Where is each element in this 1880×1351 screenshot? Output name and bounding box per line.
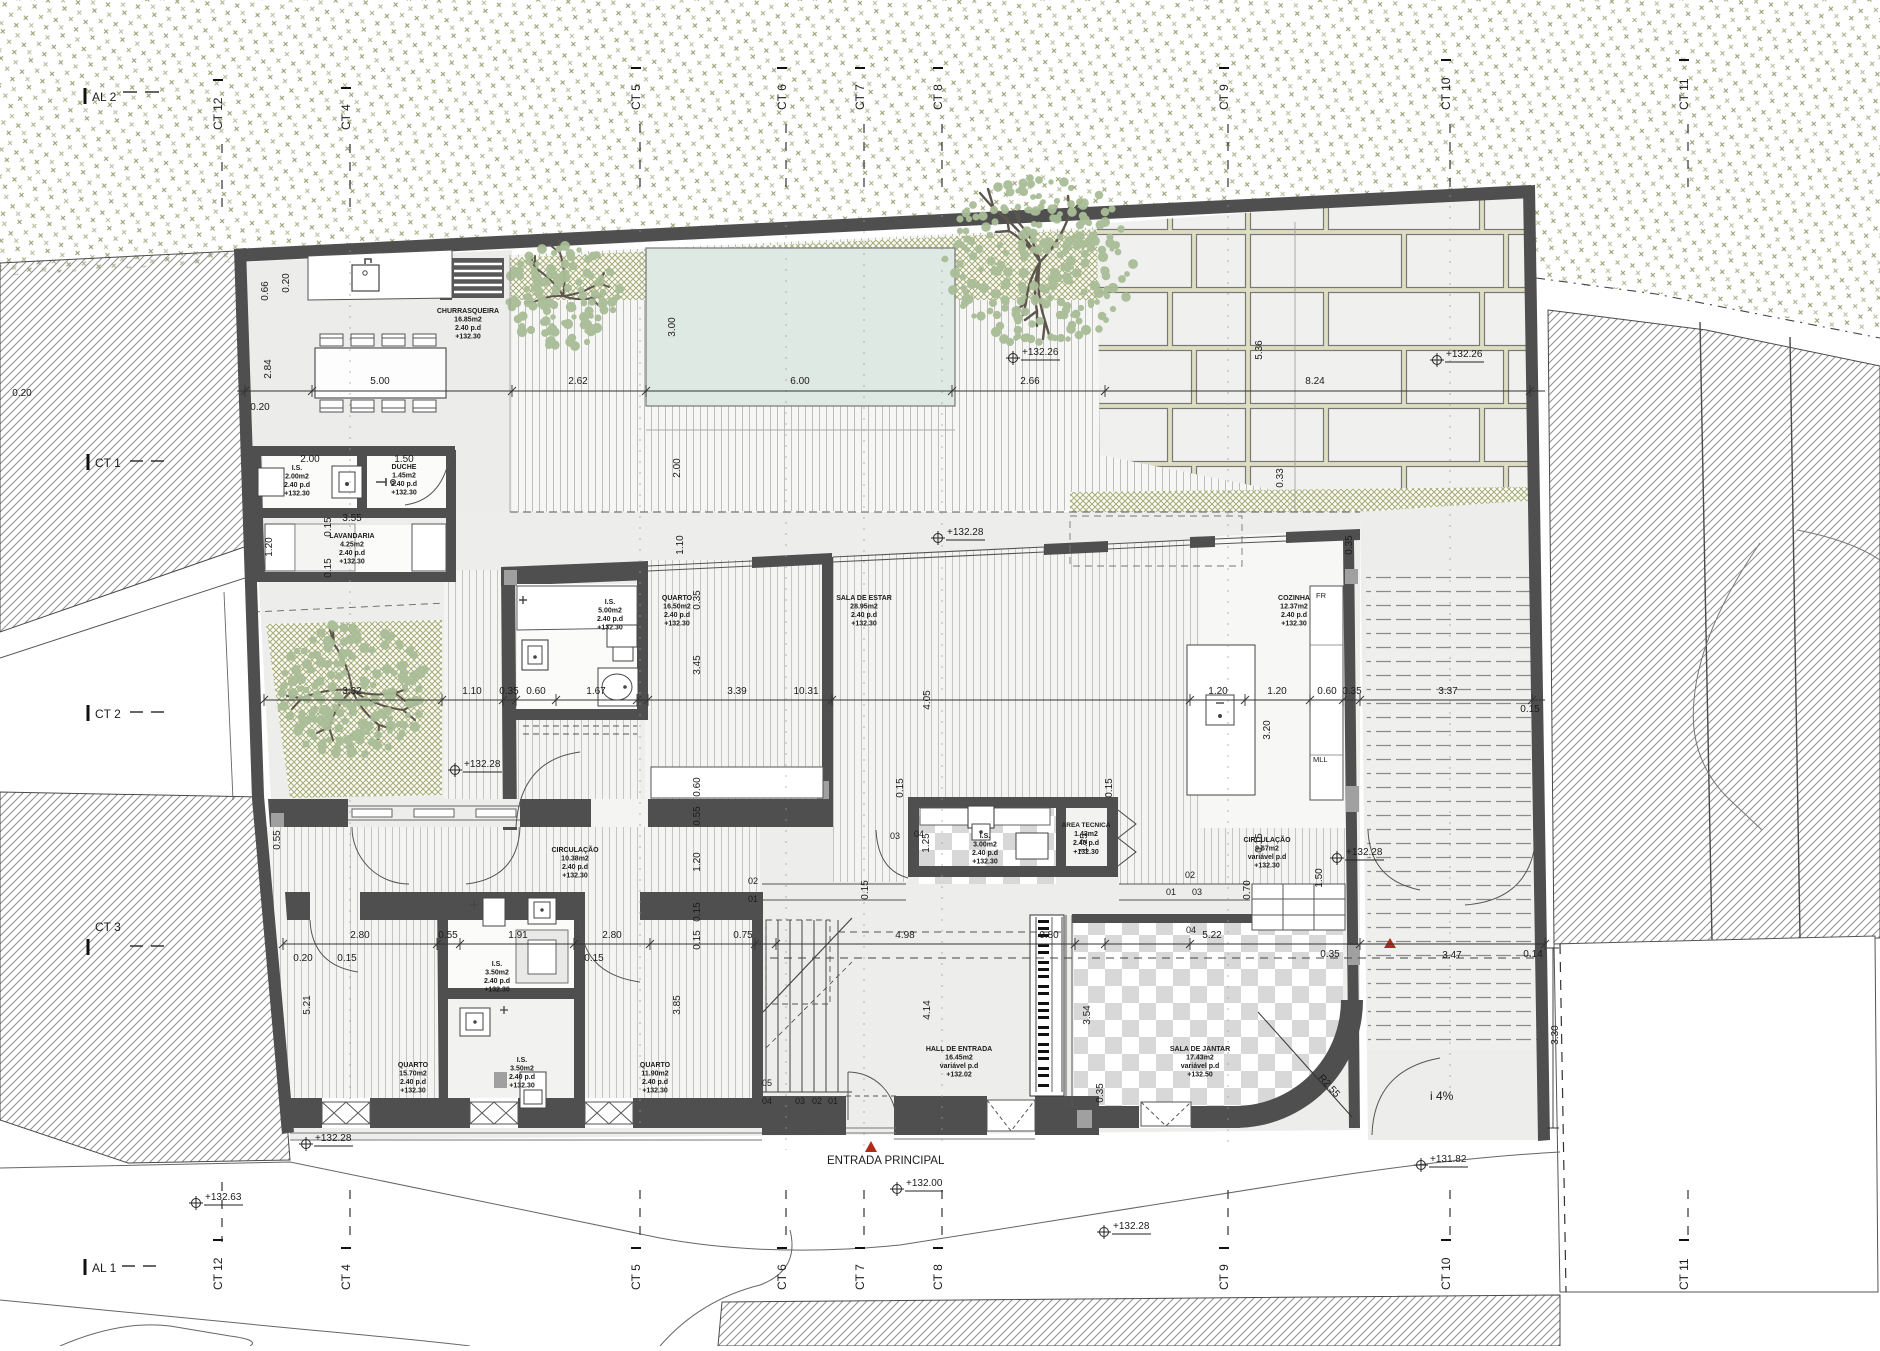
- svg-text:+132.30: +132.30: [400, 1088, 426, 1095]
- svg-text:CHURRASQUEIRA: CHURRASQUEIRA: [437, 308, 499, 315]
- svg-text:0.15: 0.15: [1254, 833, 1265, 853]
- svg-text:CT 5: CT 5: [629, 1264, 643, 1290]
- svg-text:2.40 p.d: 2.40 p.d: [972, 850, 998, 857]
- svg-text:+132.30: +132.30: [284, 491, 310, 498]
- svg-text:0.35: 0.35: [1342, 686, 1362, 697]
- svg-text:17.43m2: 17.43m2: [1186, 1055, 1214, 1062]
- svg-text:3.32: 3.32: [342, 686, 362, 697]
- svg-text:12.37m2: 12.37m2: [1280, 604, 1308, 611]
- svg-text:16.45m2: 16.45m2: [945, 1055, 973, 1062]
- svg-text:I.S.: I.S.: [517, 1057, 528, 1064]
- svg-text:1.91: 1.91: [508, 930, 528, 941]
- svg-text:2.40 p.d: 2.40 p.d: [391, 481, 417, 488]
- svg-text:+132.30: +132.30: [1281, 621, 1307, 628]
- svg-text:+132.30: +132.30: [642, 1088, 668, 1095]
- svg-text:CT 11: CT 11: [1677, 1258, 1691, 1290]
- svg-text:02: 02: [748, 876, 758, 886]
- svg-text:QUARTO: QUARTO: [662, 595, 693, 602]
- svg-text:0.60: 0.60: [1317, 686, 1337, 697]
- svg-text:2.40 p.d: 2.40 p.d: [851, 612, 877, 619]
- svg-text:3.37: 3.37: [1438, 686, 1458, 697]
- svg-text:DUCHE: DUCHE: [392, 464, 417, 471]
- svg-text:+132.50: +132.50: [1187, 1072, 1213, 1079]
- svg-text:+132.30: +132.30: [455, 334, 481, 341]
- svg-text:I.S.: I.S.: [605, 599, 616, 606]
- svg-text:1.45m2: 1.45m2: [392, 473, 416, 480]
- svg-text:+132.30: +132.30: [339, 559, 365, 566]
- svg-text:28.95m2: 28.95m2: [850, 604, 878, 611]
- svg-text:3.55: 3.55: [342, 513, 362, 524]
- svg-text:3.20: 3.20: [1262, 720, 1273, 740]
- svg-text:+132.28: +132.28: [464, 759, 501, 770]
- svg-text:+132.30: +132.30: [597, 625, 623, 632]
- svg-text:1.20: 1.20: [692, 852, 703, 872]
- svg-text:0.55: 0.55: [692, 806, 703, 826]
- svg-text:5.00m2: 5.00m2: [598, 608, 622, 615]
- svg-text:0.60: 0.60: [526, 686, 546, 697]
- svg-text:0.15: 0.15: [1520, 704, 1540, 715]
- svg-text:MLL: MLL: [1313, 755, 1328, 764]
- svg-text:2.00: 2.00: [300, 454, 320, 465]
- svg-text:+132.28: +132.28: [1113, 1221, 1150, 1232]
- svg-text:10.38m2: 10.38m2: [561, 856, 589, 863]
- svg-text:6.00: 6.00: [790, 376, 810, 387]
- svg-text:16.85m2: 16.85m2: [454, 317, 482, 324]
- svg-text:+132.26: +132.26: [1446, 349, 1483, 360]
- svg-text:CT 6: CT 6: [775, 84, 789, 110]
- svg-text:0.15: 0.15: [692, 902, 703, 922]
- svg-text:4.98: 4.98: [895, 930, 915, 941]
- svg-text:CT 10: CT 10: [1439, 1257, 1453, 1290]
- svg-text:04: 04: [762, 1096, 772, 1106]
- svg-text:0.35: 0.35: [1095, 1083, 1106, 1103]
- svg-text:1.20: 1.20: [264, 537, 275, 557]
- svg-text:1.20: 1.20: [1267, 686, 1287, 697]
- svg-text:2.40 p.d: 2.40 p.d: [484, 978, 510, 985]
- svg-text:+132.30: +132.30: [664, 621, 690, 628]
- svg-text:0.60: 0.60: [692, 777, 703, 797]
- svg-text:CT 2: CT 2: [95, 707, 121, 721]
- svg-text:+132.26: +132.26: [1022, 347, 1059, 358]
- svg-text:CT 8: CT 8: [931, 84, 945, 110]
- svg-text:3.54: 3.54: [1082, 1005, 1093, 1025]
- svg-text:SALA DE ESTAR: SALA DE ESTAR: [836, 595, 892, 602]
- svg-text:+132.28: +132.28: [315, 1133, 352, 1144]
- svg-text:5.22: 5.22: [1202, 930, 1222, 941]
- svg-text:2.80: 2.80: [602, 930, 622, 941]
- svg-text:+132.30: +132.30: [562, 873, 588, 880]
- svg-text:5.36: 5.36: [1254, 340, 1265, 360]
- svg-text:0.15: 0.15: [584, 953, 604, 964]
- svg-text:04: 04: [914, 829, 924, 839]
- svg-text:CIRCULAÇÃO: CIRCULAÇÃO: [551, 845, 599, 854]
- svg-text:2.00m2: 2.00m2: [285, 474, 309, 481]
- svg-text:0.15: 0.15: [323, 517, 334, 537]
- svg-text:CT 3: CT 3: [95, 920, 121, 934]
- svg-text:+132.02: +132.02: [946, 1072, 972, 1079]
- svg-text:10.31: 10.31: [793, 686, 818, 697]
- svg-text:2.84: 2.84: [263, 359, 274, 379]
- svg-text:+131.82: +131.82: [1430, 1154, 1467, 1165]
- svg-text:1.10: 1.10: [462, 686, 482, 697]
- svg-text:2.40 p.d: 2.40 p.d: [642, 1079, 668, 1086]
- svg-text:0.14: 0.14: [1523, 949, 1543, 960]
- svg-text:2.40 p.d: 2.40 p.d: [509, 1074, 535, 1081]
- svg-text:11.90m2: 11.90m2: [641, 1071, 668, 1078]
- svg-text:15.70m2: 15.70m2: [399, 1071, 427, 1078]
- svg-text:16.50m2: 16.50m2: [663, 604, 691, 611]
- svg-text:4.05: 4.05: [922, 690, 933, 710]
- svg-text:01: 01: [828, 1096, 838, 1106]
- svg-text:4.14: 4.14: [922, 1000, 933, 1020]
- svg-text:CT 8: CT 8: [931, 1264, 945, 1290]
- svg-text:+132.30: +132.30: [484, 987, 510, 994]
- svg-text:1.20: 1.20: [1208, 686, 1228, 697]
- svg-text:0.75: 0.75: [733, 930, 753, 941]
- svg-text:0.35: 0.35: [1320, 949, 1340, 960]
- svg-text:CT 4: CT 4: [339, 1264, 353, 1290]
- svg-text:03: 03: [890, 831, 900, 841]
- svg-text:CT 10: CT 10: [1439, 77, 1453, 110]
- svg-text:0.33: 0.33: [1275, 468, 1286, 488]
- svg-text:5.21: 5.21: [302, 995, 313, 1015]
- svg-text:3.45: 3.45: [692, 655, 703, 675]
- svg-text:2.66: 2.66: [1020, 376, 1040, 387]
- svg-text:HALL DE ENTRADA: HALL DE ENTRADA: [926, 1046, 992, 1053]
- svg-text:variável p.d: variável p.d: [1248, 854, 1287, 861]
- svg-text:+132.30: +132.30: [509, 1083, 535, 1090]
- svg-text:2.40 p.d: 2.40 p.d: [1281, 612, 1307, 619]
- svg-text:CT 1: CT 1: [95, 456, 121, 470]
- svg-text:2.40 p.d: 2.40 p.d: [455, 325, 481, 332]
- svg-text:3.50m2: 3.50m2: [485, 970, 509, 977]
- svg-text:01: 01: [1166, 887, 1176, 897]
- svg-text:3.00m2: 3.00m2: [973, 842, 997, 849]
- svg-text:1.10: 1.10: [675, 535, 686, 555]
- svg-text:CT 11: CT 11: [1677, 78, 1691, 110]
- svg-text:4.25m2: 4.25m2: [340, 542, 364, 549]
- svg-text:2.40 p.d: 2.40 p.d: [339, 550, 365, 557]
- svg-text:I.S.: I.S.: [292, 465, 303, 472]
- svg-text:CT 5: CT 5: [629, 84, 643, 110]
- svg-text:0.35: 0.35: [692, 590, 703, 610]
- svg-text:3.00: 3.00: [667, 317, 678, 337]
- svg-text:02: 02: [1185, 870, 1195, 880]
- svg-text:SALA DE JANTAR: SALA DE JANTAR: [1170, 1046, 1230, 1053]
- svg-text:+132.30: +132.30: [1254, 863, 1280, 870]
- svg-text:CT 4: CT 4: [339, 104, 353, 130]
- svg-text:2.62: 2.62: [568, 376, 588, 387]
- svg-text:QUARTO: QUARTO: [398, 1062, 429, 1069]
- svg-text:variável p.d: variável p.d: [1181, 1063, 1220, 1070]
- svg-text:3.30: 3.30: [1550, 1025, 1561, 1045]
- svg-text:CT 9: CT 9: [1217, 84, 1231, 110]
- svg-text:variável p.d: variável p.d: [940, 1063, 979, 1070]
- svg-text:+132.63: +132.63: [205, 1192, 242, 1203]
- svg-text:05: 05: [762, 1078, 772, 1088]
- svg-text:0.20: 0.20: [12, 388, 32, 399]
- svg-text:04: 04: [1186, 925, 1196, 935]
- svg-text:2.40 p.d: 2.40 p.d: [400, 1079, 426, 1086]
- svg-text:0.15: 0.15: [337, 953, 357, 964]
- svg-text:AL 2: AL 2: [92, 90, 117, 104]
- svg-text:01: 01: [748, 894, 758, 904]
- svg-text:AREA TECNICA: AREA TECNICA: [1062, 822, 1111, 829]
- svg-text:0.55: 0.55: [272, 830, 283, 850]
- svg-text:8.24: 8.24: [1305, 376, 1325, 387]
- svg-text:CT 6: CT 6: [775, 1264, 789, 1290]
- svg-text:0.55: 0.55: [438, 930, 458, 941]
- svg-text:3.50m2: 3.50m2: [510, 1066, 534, 1073]
- svg-text:0.15: 0.15: [1104, 778, 1115, 798]
- svg-text:2.40 p.d: 2.40 p.d: [284, 482, 310, 489]
- svg-text:3.47: 3.47: [1442, 950, 1462, 961]
- svg-text:CT 9: CT 9: [1217, 1264, 1231, 1290]
- svg-text:I.S.: I.S.: [492, 961, 503, 968]
- svg-text:3.39: 3.39: [727, 686, 747, 697]
- svg-text:+132.30: +132.30: [391, 490, 417, 497]
- svg-text:0.15: 0.15: [692, 930, 703, 950]
- svg-text:03: 03: [795, 1096, 805, 1106]
- svg-text:CIRCULAÇÃO: CIRCULAÇÃO: [1243, 835, 1291, 844]
- svg-text:0.70: 0.70: [1242, 880, 1253, 900]
- svg-text:CT 12: CT 12: [211, 97, 225, 130]
- svg-text:0.80: 0.80: [1039, 930, 1059, 941]
- svg-text:QUARTO: QUARTO: [640, 1062, 671, 1069]
- svg-text:+132.30: +132.30: [851, 621, 877, 628]
- svg-text:+132.28: +132.28: [947, 527, 984, 538]
- svg-text:AL 1: AL 1: [92, 1261, 117, 1275]
- svg-text:0.20: 0.20: [293, 953, 313, 964]
- svg-text:I.S.: I.S.: [980, 833, 991, 840]
- svg-text:2.00: 2.00: [672, 458, 683, 478]
- svg-text:0.66: 0.66: [260, 281, 271, 301]
- svg-text:2.40 p.d: 2.40 p.d: [597, 616, 623, 623]
- svg-text:CT 12: CT 12: [211, 1257, 225, 1290]
- svg-text:CT 7: CT 7: [853, 84, 867, 110]
- svg-text:1.50: 1.50: [1314, 868, 1325, 888]
- svg-text:+132.30: +132.30: [972, 859, 998, 866]
- svg-text:0.15: 0.15: [860, 880, 871, 900]
- svg-text:0.15: 0.15: [323, 558, 334, 578]
- svg-text:0.15: 0.15: [895, 778, 906, 798]
- svg-text:1.50: 1.50: [394, 454, 414, 465]
- svg-text:0.35: 0.35: [1344, 535, 1355, 555]
- svg-text:ENTRADA PRINCIPAL: ENTRADA PRINCIPAL: [827, 1155, 945, 1167]
- svg-text:1.67: 1.67: [586, 686, 606, 697]
- svg-text:LAVANDARIA: LAVANDARIA: [329, 533, 374, 540]
- svg-text:1.25: 1.25: [1079, 833, 1090, 853]
- svg-text:CT 7: CT 7: [853, 1264, 867, 1290]
- svg-text:COZINHA: COZINHA: [1278, 595, 1310, 602]
- svg-text:2.40 p.d: 2.40 p.d: [664, 612, 690, 619]
- svg-text:2.40 p.d: 2.40 p.d: [562, 864, 588, 871]
- svg-text:03: 03: [1192, 887, 1202, 897]
- svg-text:FR: FR: [1316, 591, 1327, 600]
- svg-text:i 4%: i 4%: [1430, 1089, 1454, 1103]
- svg-text:2.80: 2.80: [350, 930, 370, 941]
- svg-text:3.85: 3.85: [672, 995, 683, 1015]
- svg-text:02: 02: [812, 1096, 822, 1106]
- svg-text:0.20: 0.20: [281, 273, 292, 293]
- svg-text:5.00: 5.00: [370, 376, 390, 387]
- svg-text:+132.00: +132.00: [906, 1178, 943, 1189]
- svg-text:0.20: 0.20: [250, 402, 270, 413]
- svg-text:+132.28: +132.28: [1346, 847, 1383, 858]
- svg-text:0.35: 0.35: [499, 686, 519, 697]
